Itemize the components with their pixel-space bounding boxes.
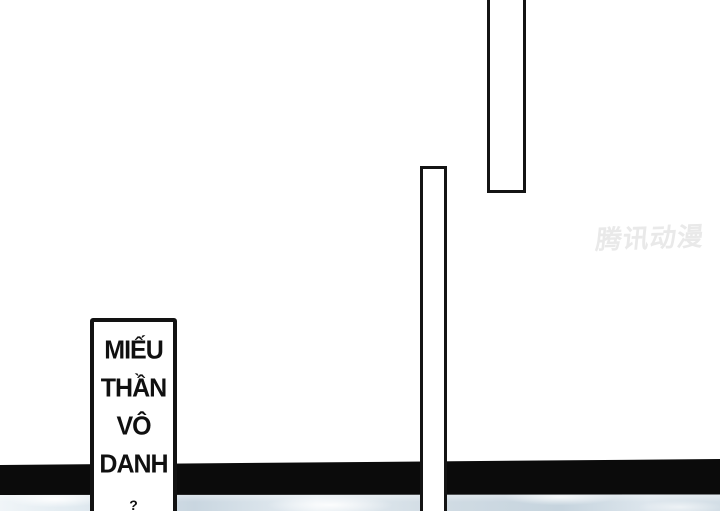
sign-line: THẦN [94, 368, 173, 408]
pillar-top [487, 0, 526, 193]
pillar-vertical [420, 166, 447, 511]
sign-line: MIẾU [94, 330, 173, 370]
shrine-sign: MIẾU THẦN VÔ DANH ? [90, 318, 177, 511]
comic-panel: 腾讯动漫 MIẾU THẦN VÔ DANH ? [0, 0, 720, 511]
sign-line: DANH [94, 444, 173, 484]
sign-line: VÔ [94, 406, 173, 446]
tencent-comics-watermark: 腾讯动漫 [594, 220, 708, 256]
sign-question-mark: ? [94, 497, 173, 511]
